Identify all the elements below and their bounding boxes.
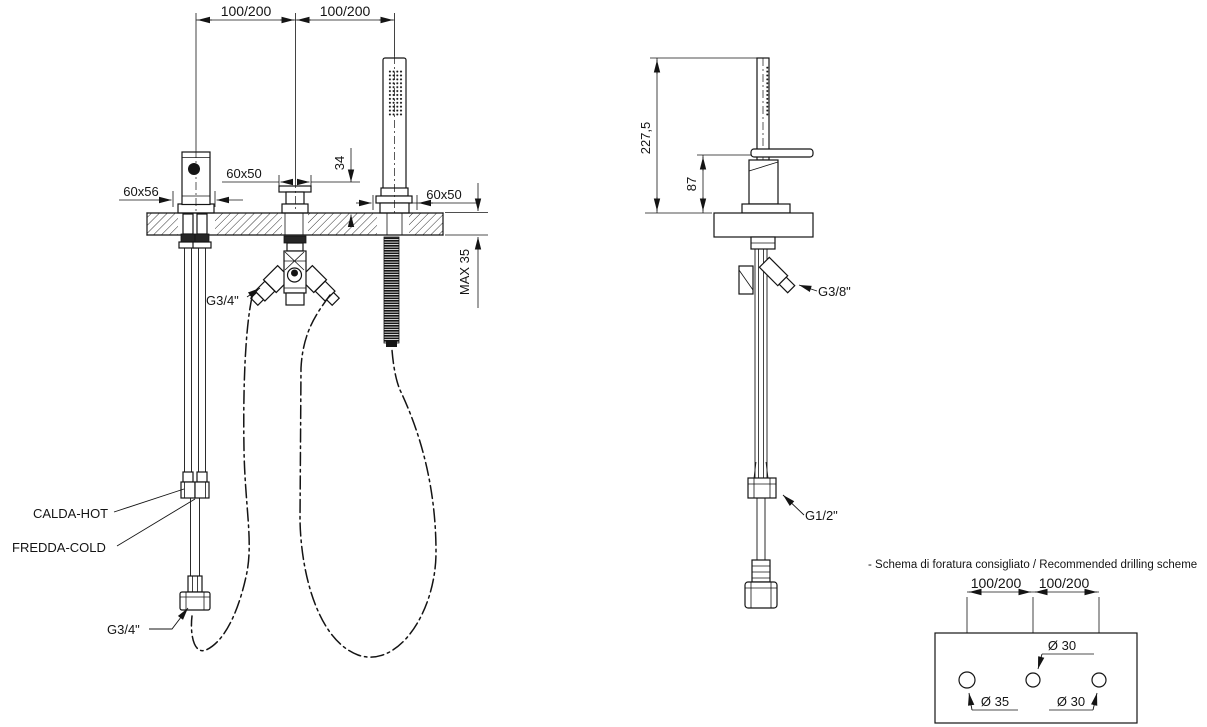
dim-deck-thickness: MAX 35 — [457, 249, 472, 295]
side-dimension-lines — [645, 58, 757, 213]
spout-flange — [279, 186, 311, 192]
flexible-hose-loops — [191, 295, 436, 657]
shower-threaded-rod — [384, 237, 399, 347]
leader-angle-connector — [799, 285, 817, 291]
dim-spout-base: 60x50 — [226, 166, 261, 181]
handle-dot — [188, 163, 200, 175]
label-diverter-thread: G3/4" — [206, 293, 239, 308]
leader-shower-hose — [783, 495, 804, 515]
dim-spout-height: 34 — [332, 156, 347, 170]
dim-handle-base: 60x56 — [123, 184, 158, 199]
leader-cold — [117, 499, 195, 546]
spout-body — [286, 192, 304, 204]
mixer-outlet-hose — [180, 498, 210, 610]
dim-overall-height: 227,5 — [638, 122, 653, 155]
label-angle-connector-thread: G3/8" — [818, 284, 851, 299]
hot-hose-nut — [181, 482, 195, 498]
bath-mixer-drawing: 100/200 100/200 60x56 — [0, 0, 1207, 727]
spout — [279, 180, 311, 213]
side-faucet — [714, 58, 813, 608]
label-hole-middle: Ø 30 — [1048, 638, 1076, 653]
side-hose-ribbed-end — [752, 560, 770, 582]
tee-bottom-outlet — [286, 293, 304, 305]
technical-drawing-sheet: 100/200 100/200 60x56 — [0, 0, 1207, 727]
side-escutcheon — [742, 204, 790, 213]
label-hole-left: Ø 35 — [981, 694, 1009, 709]
shower-holder-ring — [376, 196, 412, 203]
side-view: 227,5 87 — [638, 58, 851, 608]
label-hole-right: Ø 30 — [1057, 694, 1085, 709]
outlet-hose-nut — [180, 592, 210, 610]
hole-middle — [1026, 673, 1040, 687]
label-outlet-hose-thread: G3/4" — [107, 622, 140, 637]
side-deck — [714, 213, 813, 237]
side-hose-coupling — [748, 478, 776, 498]
drilling-scheme: - Schema di foratura consigliato / Recom… — [868, 559, 1197, 723]
hole-right — [1092, 673, 1106, 687]
leader-hot — [114, 489, 184, 512]
front-view: 100/200 100/200 60x56 — [12, 3, 488, 657]
label-shower-hose-thread: G1/2" — [805, 508, 838, 523]
side-angle-connector — [759, 257, 796, 294]
label-cold: FREDDA-COLD — [12, 540, 106, 555]
hand-shower — [376, 56, 412, 213]
hole-left — [959, 672, 975, 688]
spray-face — [388, 69, 403, 117]
drilling-dim-left: 100/200 — [971, 575, 1022, 591]
leader-outlet-hose-thread — [149, 608, 188, 629]
label-hot: CALDA-HOT — [33, 506, 108, 521]
dim-shower-base: 60x50 — [426, 187, 461, 202]
spout-base — [282, 204, 308, 213]
dim-span-right: 100/200 — [320, 3, 371, 19]
supply-hoses — [179, 214, 211, 498]
dim-span-left: 100/200 — [221, 3, 272, 19]
mixer-handle — [178, 150, 214, 213]
drilling-dim-right: 100/200 — [1039, 575, 1090, 591]
drilling-note: - Schema di foratura consigliato / Recom… — [868, 559, 1197, 571]
side-hose-end-nut — [745, 582, 777, 608]
top-dimension-lines — [196, 13, 395, 180]
cold-hose-nut — [195, 482, 209, 498]
dim-handle-height: 87 — [684, 177, 699, 191]
side-lever — [751, 149, 813, 157]
